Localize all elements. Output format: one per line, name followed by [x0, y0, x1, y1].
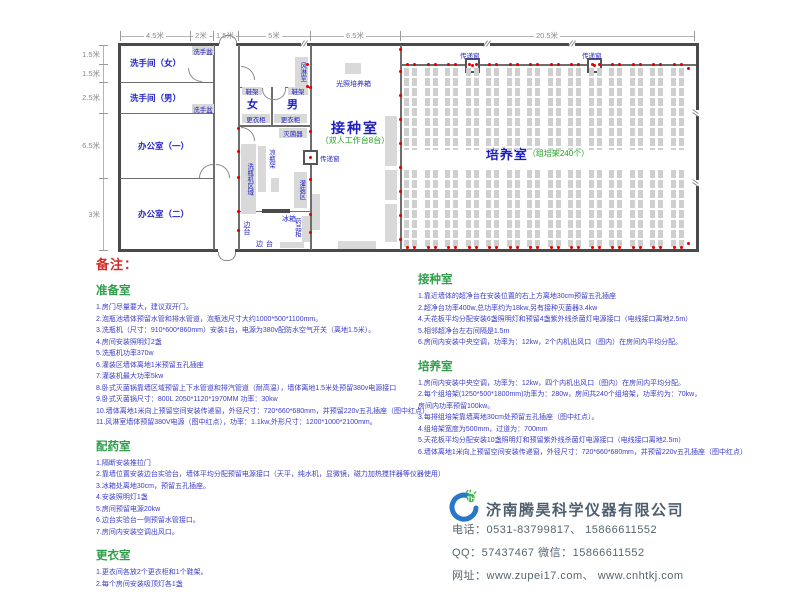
outlet-dot — [659, 246, 662, 249]
culture-rack-bar — [466, 170, 471, 247]
outlet-dot — [475, 63, 478, 66]
door-arc-wc-female — [188, 68, 202, 82]
culture-rack-bar — [433, 170, 438, 247]
company-qq-wechat: QQ：57437467 微信：15866611552 — [452, 544, 645, 560]
outlet-dot — [611, 246, 614, 249]
notes-right-column: 接种室1.靠近墙体的超净台在安装位置的右上方离地30cm预留五孔插座2.超净台功… — [418, 262, 738, 458]
outlet-dot — [673, 63, 676, 66]
wall-break-mark — [692, 110, 699, 116]
culture-rack-bar — [638, 68, 643, 150]
culture-rack-bar — [658, 68, 663, 150]
room-office-1: 办公室（一） — [138, 140, 189, 152]
note-line: 6.边台实验台一侧预留水管接口。 — [96, 515, 426, 527]
outlet-dot — [475, 246, 478, 249]
wall-break-mark — [692, 180, 699, 186]
wall-wc-divider — [120, 82, 213, 83]
outlet-dot — [237, 127, 240, 130]
outlet-dot — [577, 63, 580, 66]
culture-rack-bar — [412, 68, 417, 150]
clean-bench-shape — [385, 170, 397, 200]
dim-top-6: 20.5米 — [534, 30, 560, 41]
note-line: 4.房间安装照明灯2盏 — [96, 337, 426, 349]
incubator-shape — [345, 63, 361, 74]
pass-window-label: 传递窗 — [582, 50, 602, 60]
room-wc-female: 洗手间（女） — [130, 57, 181, 69]
company-logo-text: TH — [467, 497, 475, 503]
outlet-dot — [577, 246, 580, 249]
culture-rack-bar — [486, 170, 491, 247]
note-line: 3.每排组培架靠墙离地30cm处预留五孔插座（图中红点）。 — [418, 412, 738, 424]
note-line: 3.冰箱处离地30cm，预留五孔插座。 — [96, 481, 426, 493]
locker-label: 更衣柜 — [274, 114, 307, 123]
outlet-dot — [557, 63, 560, 66]
pass-window — [303, 150, 318, 165]
outlet-dot — [516, 246, 519, 249]
culture-rack-bar — [412, 170, 417, 247]
light-incubator-label: 光照培养箱 — [336, 79, 371, 89]
company-name: 济南腾昊科学仪器有限公司 — [486, 499, 684, 520]
outlet-dot — [399, 70, 402, 73]
outlet-dot — [399, 48, 402, 51]
door-arc-prep — [241, 127, 255, 141]
notes-title: 备注： — [96, 254, 426, 273]
culture-rack-bar — [556, 170, 561, 247]
note-line: 4.天花板平均分配安装6盏照明灯和预留4盏紫外线杀菌灯电源接口（电线接口离地2.… — [418, 314, 738, 326]
outlet-dot — [652, 63, 655, 66]
medicine-cabinet-label: 药品柜 — [293, 218, 300, 238]
outlet-dot — [309, 213, 312, 216]
culture-rack-bar — [445, 170, 450, 247]
outlet-dot — [237, 176, 240, 179]
outlet-dot — [237, 210, 240, 213]
door-arc-dressing — [262, 88, 286, 100]
room-office-2: 办公室（二） — [138, 208, 189, 220]
outlet-dot — [488, 63, 491, 66]
outlet-dot — [434, 63, 437, 66]
note-line: 8.卧式灭菌锅靠墙区域预留上下水管道和排汽管道（耐高温），墙体离地1.5米处预留… — [96, 383, 426, 395]
outlet-dot — [399, 166, 402, 169]
culture-rack-bar — [589, 68, 594, 150]
culture-rack-bar — [404, 68, 409, 150]
notes-section-heading: 培养室 — [418, 358, 738, 374]
outlet-dot — [618, 246, 621, 249]
culture-rack-bar — [474, 170, 479, 247]
outlet-dot — [427, 63, 430, 66]
culture-rack-bar — [597, 68, 602, 150]
note-line: 11.风淋室墙体预留380V电源（图中红点），功率：1.1kw,外形尺寸：120… — [96, 417, 426, 429]
outlet-dot — [591, 63, 594, 66]
clean-bench-shape — [385, 204, 397, 242]
outlet-dot — [680, 63, 683, 66]
dim-tick — [694, 31, 695, 41]
outlet-dot — [399, 214, 402, 217]
cooling-rack-shape — [258, 146, 266, 192]
wall-corridor — [238, 45, 240, 250]
dim-tick — [99, 178, 108, 179]
outlet-dot — [598, 63, 601, 66]
outlet-dot — [639, 63, 642, 66]
notes-left-column: 备注： 准备室1.房门尽量要大，建议双开门。2.泡瓶池墙体预留水管和排水管道，泡… — [96, 254, 426, 590]
note-line: 7.房间内安装空调出风口。 — [96, 527, 426, 539]
company-website: 网址：www.zupei17.com、 www.cnhtkj.com — [452, 567, 684, 583]
pass-window-label: 传递窗 — [460, 50, 480, 60]
outlet-dot — [495, 246, 498, 249]
culture-rack-bar — [576, 68, 581, 150]
outlet-dot — [570, 63, 573, 66]
outlet-dot — [306, 85, 309, 88]
door-arc-office1-b — [216, 164, 230, 178]
outlet-dot — [309, 130, 312, 133]
note-line: 9.卧式灭菌锅尺寸：800L 2050*1120*1970MM 功率：30kw — [96, 394, 426, 406]
dim-left-1: 1.5米 — [70, 49, 100, 60]
notes-right-sections: 接种室1.靠近墙体的超净台在安装位置的右上方离地30cm预留五孔插座2.超净台功… — [418, 271, 738, 458]
note-line: 3.洗瓶机（尺寸：910*600*860mm）安装1台，电源为380v配防水空气… — [96, 325, 426, 337]
dim-tick — [120, 31, 121, 41]
dim-tick — [400, 31, 401, 41]
culture-rack-bar — [535, 170, 540, 247]
culture-rack-bar — [679, 68, 684, 150]
wall-break-mark — [569, 40, 575, 47]
outlet-dot — [536, 246, 539, 249]
outlet-dot — [680, 246, 683, 249]
outlet-dot — [509, 246, 512, 249]
dim-tick — [190, 31, 191, 41]
outer-wall-right — [696, 43, 699, 252]
cooling-rack-label: 凉瓶架 — [267, 149, 274, 169]
outlet-dot — [309, 178, 312, 181]
outlet-dot — [632, 246, 635, 249]
note-line: 5.天花板平均分配安装10盏照明灯和预留紫外线杀菌灯电源接口（电线接口离地2.5… — [418, 435, 738, 447]
outlet-dot — [413, 246, 416, 249]
room-dress-male: 男 — [287, 96, 298, 112]
dim-left-4: 6.5米 — [70, 140, 100, 151]
dim-tick — [238, 31, 239, 41]
culture-rack-bar — [466, 68, 471, 150]
outlet-dot — [447, 246, 450, 249]
outlet-dot — [306, 63, 309, 66]
side-bench-shape — [280, 242, 304, 248]
culture-rack-bar — [453, 68, 458, 150]
outlet-dot — [598, 246, 601, 249]
outlet-dot — [406, 63, 409, 66]
outlet-dot — [454, 63, 457, 66]
culture-rack-bar — [433, 68, 438, 150]
outlet-dot — [557, 246, 560, 249]
dim-top-4: 5米 — [266, 30, 282, 41]
note-line: 2.超净台功率400w,总功率约为18kw,另有接种灭菌器3.4kw — [418, 303, 738, 315]
culture-rack-bar — [453, 170, 458, 247]
culture-rack-bar — [507, 68, 512, 150]
dim-left-5: 3米 — [70, 209, 100, 220]
dim-tick — [99, 82, 108, 83]
notes-section-heading: 配药室 — [96, 438, 426, 454]
culture-rack-bar — [474, 68, 479, 150]
dim-left-2: 1.5米 — [70, 68, 100, 79]
room-dress-female: 女 — [247, 96, 258, 112]
culture-rack-bar — [630, 68, 635, 150]
company-logo-icon: TH — [446, 489, 482, 525]
clean-bench-shape — [385, 116, 397, 166]
culture-rack-bar — [486, 68, 491, 150]
culture-rack-bar — [638, 170, 643, 247]
wall-office-divider — [120, 178, 213, 179]
outlet-dot — [399, 190, 402, 193]
outlet-dot — [687, 242, 690, 245]
wall-break-mark — [301, 40, 307, 47]
culture-rack-bar — [658, 170, 663, 247]
culture-rack-bar — [556, 68, 561, 150]
air-shower-label: 风淋室 — [295, 57, 308, 87]
culture-rack-bar — [671, 170, 676, 247]
bottle-washer-area-label: 洗瓶机区域 — [241, 144, 256, 214]
culture-rack-bar — [535, 68, 540, 150]
outlet-dot — [468, 246, 471, 249]
note-line: 2.泡瓶池墙体预留水管和排水管道，泡瓶池尺寸大约1000*500*1100mm。 — [96, 314, 426, 326]
wall-wc-office — [120, 113, 213, 114]
note-line: 6.灌装区墙体离地1米预留五孔插座 — [96, 360, 426, 372]
shoe-rack-label: 鞋架 — [288, 87, 308, 95]
culture-rack-bar — [617, 68, 622, 150]
side-bench-label: 边台 — [256, 239, 276, 249]
culture-rack-bar — [515, 170, 520, 247]
wall-break-mark — [484, 40, 490, 47]
outlet-dot — [399, 238, 402, 241]
outlet-dot — [591, 246, 594, 249]
outlet-dot — [447, 63, 450, 66]
notes-section-heading: 接种室 — [418, 271, 738, 287]
outlet-dot — [237, 229, 240, 232]
culture-rack-bar — [568, 170, 573, 247]
note-line: 1.房门尽量要大，建议双开门。 — [96, 302, 426, 314]
outlet-dot — [516, 63, 519, 66]
culture-rack-bar — [494, 170, 499, 247]
culture-rack-bar — [589, 170, 594, 247]
medicine-cabinet-shape — [302, 216, 310, 242]
room-wc-male: 洗手间（男） — [130, 92, 181, 104]
washbasin-label: 洗手盆 — [192, 104, 214, 113]
dim-top-5: 6.5米 — [344, 30, 366, 41]
note-line: 6.房间内安装中央空调，功率为：12kw，2个内机出风口（图内）在房间内平均分配… — [418, 337, 738, 349]
note-line: 1.隔断安装推拉门 — [96, 458, 426, 470]
culture-rack-bar — [609, 68, 614, 150]
wall-dressing-bottom — [240, 125, 310, 127]
dim-top-2: 2米 — [193, 30, 209, 41]
sliding-door-bar — [262, 209, 290, 213]
outlet-dot — [529, 63, 532, 66]
outlet-dot — [237, 150, 240, 153]
outlet-dot — [309, 86, 312, 89]
culture-rack-bar — [425, 68, 430, 150]
left-dimension-line — [103, 45, 104, 250]
note-line: 2.每个组培架(1250*500*1800mm)功率为：280w，房间共240个… — [418, 389, 738, 401]
locker-label: 更衣柜 — [242, 114, 270, 123]
side-bench-label: 边台 — [243, 221, 250, 235]
door-arc-top-entrance — [219, 35, 237, 44]
outlet-dot — [673, 246, 676, 249]
note-line: 4.安装照明灯1盏 — [96, 492, 426, 504]
door-arc-vestibule — [241, 66, 255, 80]
note-line: 1.房间内安装中央空调，功率为：12kw，四个内机出风口（图内）在房间内平均分配… — [418, 378, 738, 390]
outlet-dot — [659, 63, 662, 66]
wall-left-block — [213, 45, 215, 250]
outlet-dot — [413, 63, 416, 66]
dim-top-1: 4.5米 — [144, 30, 166, 41]
shoe-rack-label: 鞋架 — [242, 87, 262, 95]
culture-rack-bar — [548, 68, 553, 150]
culture-rack-bar — [494, 68, 499, 150]
outlet-dot — [399, 118, 402, 121]
washbasin-label: 洗手盆 — [192, 46, 214, 55]
outlet-dot — [427, 246, 430, 249]
culture-rack-bar — [404, 170, 409, 247]
note-line: 2.每个房间安装吸顶灯各1盏 — [96, 579, 426, 591]
dim-tick — [99, 250, 108, 251]
outlet-dot — [652, 246, 655, 249]
note-line: 5.相邻超净台左右间隔是1.5m — [418, 326, 738, 338]
notes-section-heading: 准备室 — [96, 282, 426, 298]
outlet-dot — [611, 63, 614, 66]
culture-rack-bar — [507, 170, 512, 247]
outer-wall-bottom — [118, 249, 699, 252]
clean-bench-shape — [312, 194, 320, 230]
culture-rack-bar — [679, 170, 684, 247]
note-line: 2.靠墙位置安装边台实验台，墙体平均分配预留电源接口（天平，纯水机，显微镜，磁力… — [96, 469, 426, 481]
culture-rack-bar — [527, 68, 532, 150]
door-arc-office1 — [199, 164, 213, 178]
outlet-dot — [570, 246, 573, 249]
note-line: 5.房间预留电源20kw — [96, 504, 426, 516]
note-line: 5.洗瓶机功率370w — [96, 348, 426, 360]
cooling-rack-shape — [271, 178, 279, 192]
dim-tick — [99, 64, 108, 65]
notes-section-heading: 更衣室 — [96, 547, 426, 563]
outlet-dot — [495, 63, 498, 66]
note-line: 1.靠近墙体的超净台在安装位置的右上方离地30cm预留五孔插座 — [418, 291, 738, 303]
company-phone: 电话：0531-83799817、 15866611552 — [452, 521, 657, 537]
outer-wall-left — [118, 43, 121, 252]
culture-rack-bar — [568, 68, 573, 150]
outlet-dot — [399, 94, 402, 97]
culture-rack-bar — [548, 170, 553, 247]
culture-rack-bar — [650, 170, 655, 247]
outlet-dot — [406, 246, 409, 249]
outlet-dot — [687, 67, 690, 70]
dim-tick — [310, 31, 311, 41]
pass-window-label: 传递窗 — [320, 153, 340, 163]
culture-rack-bar — [617, 170, 622, 247]
wall-culture-left — [400, 45, 402, 250]
outlet-dot — [536, 63, 539, 66]
outlet-dot — [509, 63, 512, 66]
filling-area-label: 灌装区 — [294, 172, 307, 208]
note-line: 7.灌装机最大功率5kw — [96, 371, 426, 383]
dim-tick — [99, 45, 108, 46]
dim-left-3: 2.5米 — [70, 92, 100, 103]
note-line: 6.墙体离地1米向上预留空间安装传递窗，外径尺寸：720*660*680mm，并… — [418, 447, 738, 459]
note-line: 4.组培架宽度为500mm，过道为：700mm — [418, 424, 738, 436]
outlet-dot — [434, 246, 437, 249]
outlet-dot — [529, 246, 532, 249]
culture-rack-bar — [630, 170, 635, 247]
culture-rack-bar — [515, 68, 520, 150]
culture-rack-bar — [597, 170, 602, 247]
outlet-dot — [488, 246, 491, 249]
notes-left-sections: 准备室1.房门尽量要大，建议双开门。2.泡瓶池墙体预留水管和排水管道，泡瓶池尺寸… — [96, 282, 426, 590]
culture-rack-bar — [425, 170, 430, 247]
outlet-dot — [639, 246, 642, 249]
outlet-dot — [550, 63, 553, 66]
note-line: 房间内功率预留100kw。 — [418, 401, 738, 413]
clean-bench-shape — [338, 241, 376, 249]
outlet-dot — [550, 246, 553, 249]
outlet-dot — [309, 231, 312, 234]
culture-rack-bar — [527, 170, 532, 247]
culture-rack-bar — [609, 170, 614, 247]
outlet-dot — [454, 246, 457, 249]
culture-rack-bar — [671, 68, 676, 150]
outlet-dot — [399, 142, 402, 145]
outlet-dot — [632, 63, 635, 66]
note-line: 10.墙体离地1米向上预留空间安装传递窗，外径尺寸：720*660*680mm，… — [96, 406, 426, 418]
dim-tick — [99, 113, 108, 114]
culture-rack-bar — [650, 68, 655, 150]
culture-rack-bar — [576, 170, 581, 247]
outlet-dot — [468, 63, 471, 66]
outlet-dot — [618, 63, 621, 66]
culture-rack-bar — [445, 68, 450, 150]
note-line: 1.更衣间各放2个更衣柜和1个鞋架。 — [96, 567, 426, 579]
